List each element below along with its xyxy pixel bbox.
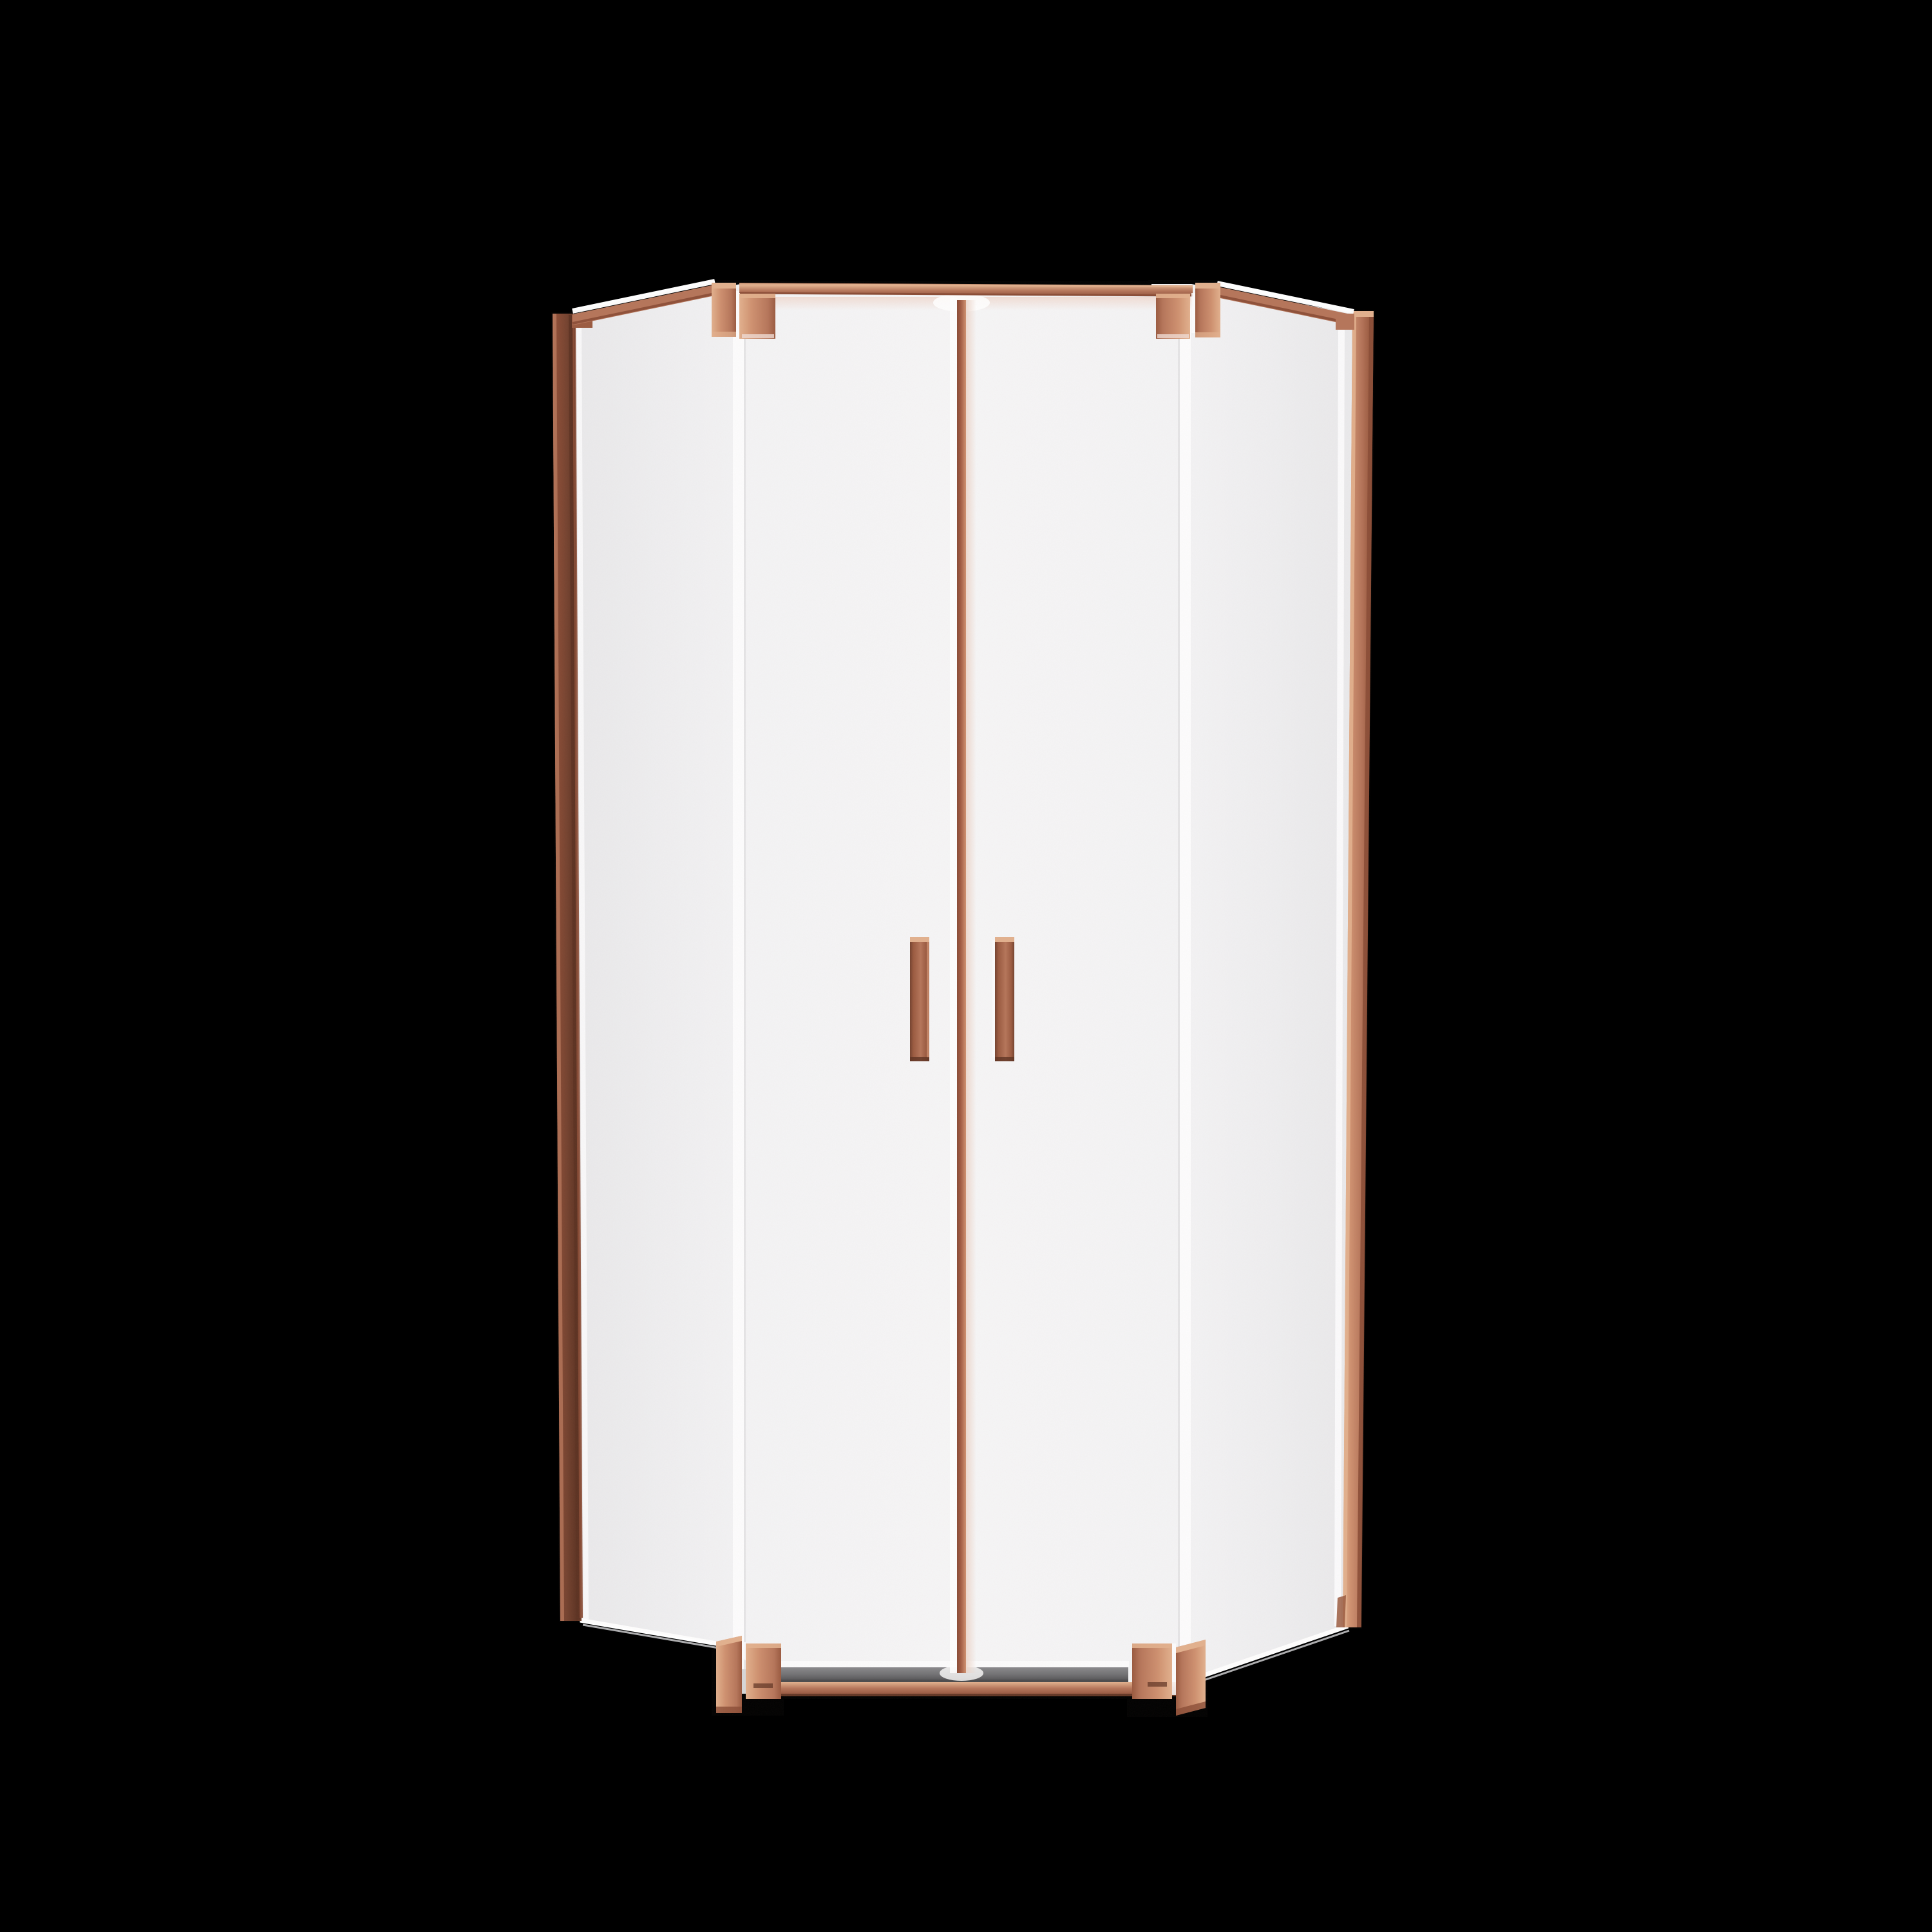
- shower-enclosure-render: [0, 0, 1932, 1932]
- product-stage: [0, 0, 1932, 1932]
- brushed-texture-overlay: [547, 277, 1381, 1723]
